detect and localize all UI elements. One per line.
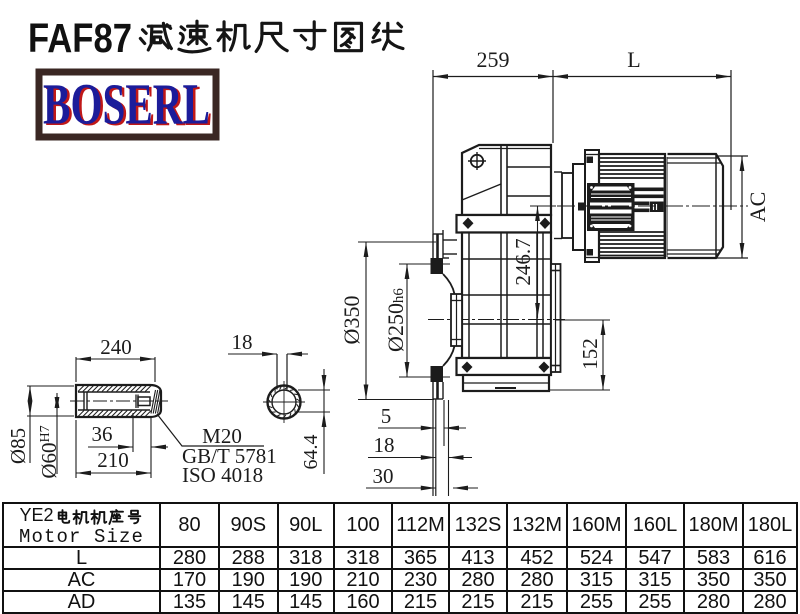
svg-text:5: 5 [381, 404, 392, 428]
svg-text:18: 18 [374, 433, 395, 457]
svg-text:36: 36 [92, 422, 113, 446]
svg-text:18: 18 [232, 330, 253, 354]
svg-text:Ø85: Ø85 [6, 428, 30, 464]
svg-text:152: 152 [578, 338, 602, 370]
svg-text:AC: AC [745, 192, 770, 223]
svg-text:ISO 4018: ISO 4018 [182, 463, 263, 487]
svg-text:Ø250h6: Ø250h6 [383, 288, 408, 352]
svg-text:L: L [627, 47, 640, 72]
svg-text:64.4: 64.4 [300, 435, 322, 470]
svg-text:246.7: 246.7 [511, 238, 535, 285]
svg-text:BOSERL: BOSERL [43, 72, 210, 137]
svg-text:259: 259 [477, 47, 510, 72]
svg-text:240: 240 [100, 335, 132, 359]
svg-text:30: 30 [373, 464, 394, 488]
svg-text:Ø350: Ø350 [339, 296, 364, 345]
svg-text:FAF87: FAF87 [28, 15, 132, 61]
svg-text:210: 210 [97, 448, 129, 472]
